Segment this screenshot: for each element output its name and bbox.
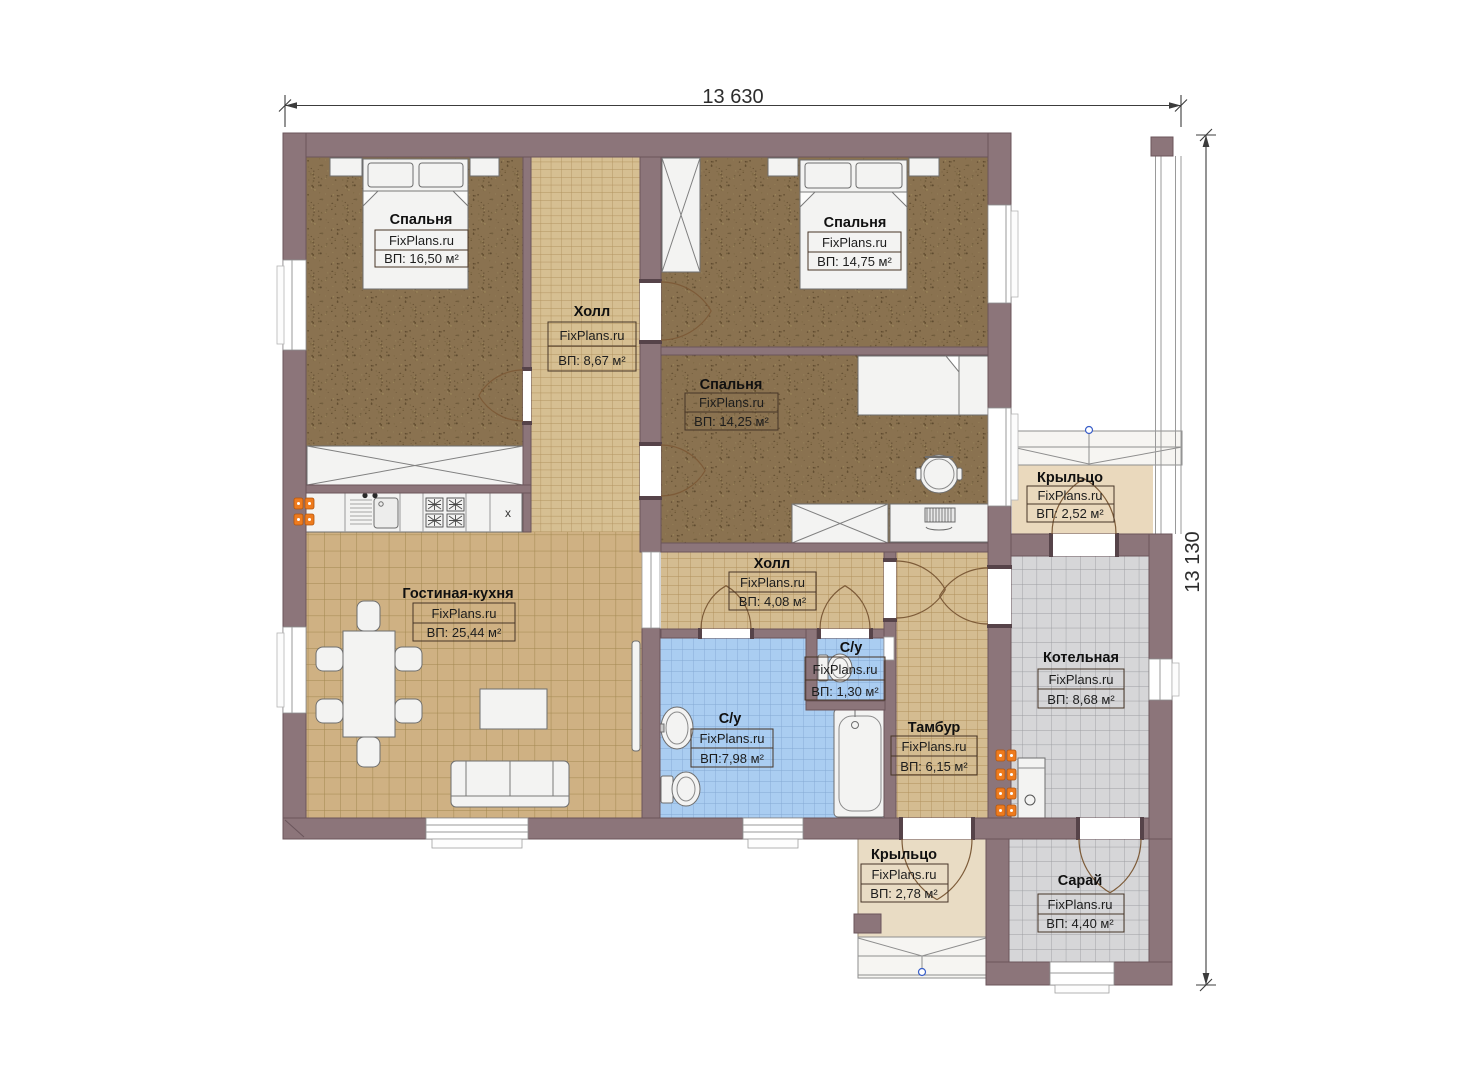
svg-text:FixPlans.ru: FixPlans.ru bbox=[871, 867, 936, 882]
svg-text:Тамбур: Тамбур bbox=[908, 720, 961, 736]
svg-text:ВП: 8,67 м²: ВП: 8,67 м² bbox=[558, 353, 626, 368]
svg-text:ВП: 25,44 м²: ВП: 25,44 м² bbox=[427, 625, 502, 640]
svg-text:ВП: 2,52 м²: ВП: 2,52 м² bbox=[1036, 506, 1104, 521]
svg-text:ВП: 2,78 м²: ВП: 2,78 м² bbox=[870, 886, 938, 901]
svg-text:FixPlans.ru: FixPlans.ru bbox=[1047, 897, 1112, 912]
svg-text:ВП: 6,15 м²: ВП: 6,15 м² bbox=[900, 759, 968, 774]
svg-text:Спальня: Спальня bbox=[390, 212, 453, 228]
svg-text:FixPlans.ru: FixPlans.ru bbox=[559, 328, 624, 343]
svg-text:13 130: 13 130 bbox=[1182, 531, 1204, 592]
svg-text:FixPlans.ru: FixPlans.ru bbox=[699, 731, 764, 746]
svg-text:FixPlans.ru: FixPlans.ru bbox=[431, 606, 496, 621]
svg-text:С/у: С/у bbox=[719, 711, 742, 727]
svg-text:Спальня: Спальня bbox=[824, 215, 887, 231]
svg-text:ВП: 14,25 м²: ВП: 14,25 м² bbox=[694, 414, 769, 429]
svg-text:Сарай: Сарай bbox=[1058, 873, 1103, 889]
svg-text:FixPlans.ru: FixPlans.ru bbox=[740, 575, 805, 590]
svg-text:ВП: 8,68 м²: ВП: 8,68 м² bbox=[1047, 692, 1115, 707]
svg-text:FixPlans.ru: FixPlans.ru bbox=[901, 739, 966, 754]
svg-text:ВП: 4,40 м²: ВП: 4,40 м² bbox=[1046, 916, 1114, 931]
svg-text:ВП: 1,30 м²: ВП: 1,30 м² bbox=[811, 684, 879, 699]
svg-text:ВП: 14,75 м²: ВП: 14,75 м² bbox=[817, 254, 892, 269]
svg-text:Котельная: Котельная bbox=[1043, 650, 1119, 666]
svg-text:Холл: Холл bbox=[754, 556, 790, 572]
svg-text:FixPlans.ru: FixPlans.ru bbox=[389, 233, 454, 248]
svg-text:ВП: 4,08 м²: ВП: 4,08 м² bbox=[739, 594, 807, 609]
svg-text:Крыльцо: Крыльцо bbox=[871, 847, 937, 863]
svg-text:FixPlans.ru: FixPlans.ru bbox=[822, 235, 887, 250]
svg-text:FixPlans.ru: FixPlans.ru bbox=[812, 662, 877, 677]
svg-text:FixPlans.ru: FixPlans.ru bbox=[699, 395, 764, 410]
svg-text:ВП: 16,50 м²: ВП: 16,50 м² bbox=[384, 251, 459, 266]
svg-text:Спальня: Спальня bbox=[700, 377, 763, 393]
svg-text:x: x bbox=[505, 506, 511, 520]
svg-text:Гостиная-кухня: Гостиная-кухня bbox=[402, 586, 513, 602]
svg-text:Крыльцо: Крыльцо bbox=[1037, 470, 1103, 486]
svg-text:Холл: Холл bbox=[574, 304, 610, 320]
svg-text:С/у: С/у bbox=[840, 640, 863, 656]
svg-text:ВП:7,98 м²: ВП:7,98 м² bbox=[700, 751, 764, 766]
svg-text:FixPlans.ru: FixPlans.ru bbox=[1037, 488, 1102, 503]
svg-text:FixPlans.ru: FixPlans.ru bbox=[1048, 672, 1113, 687]
svg-text:13 630: 13 630 bbox=[702, 86, 763, 108]
